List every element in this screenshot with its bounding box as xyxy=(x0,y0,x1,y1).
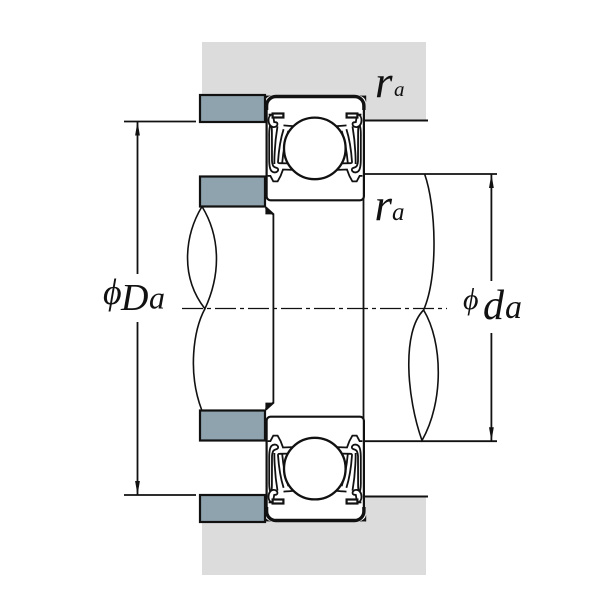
svg-text:r: r xyxy=(375,180,393,230)
svg-text:ϕ: ϕ xyxy=(103,272,122,312)
svg-text:a: a xyxy=(394,77,405,101)
svg-text:a: a xyxy=(149,280,165,316)
svg-text:ϕ: ϕ xyxy=(463,283,479,316)
svg-text:d: d xyxy=(483,283,505,329)
svg-text:a: a xyxy=(392,199,405,226)
svg-text:a: a xyxy=(505,289,522,326)
svg-text:D: D xyxy=(120,277,148,319)
svg-text:r: r xyxy=(375,57,393,107)
